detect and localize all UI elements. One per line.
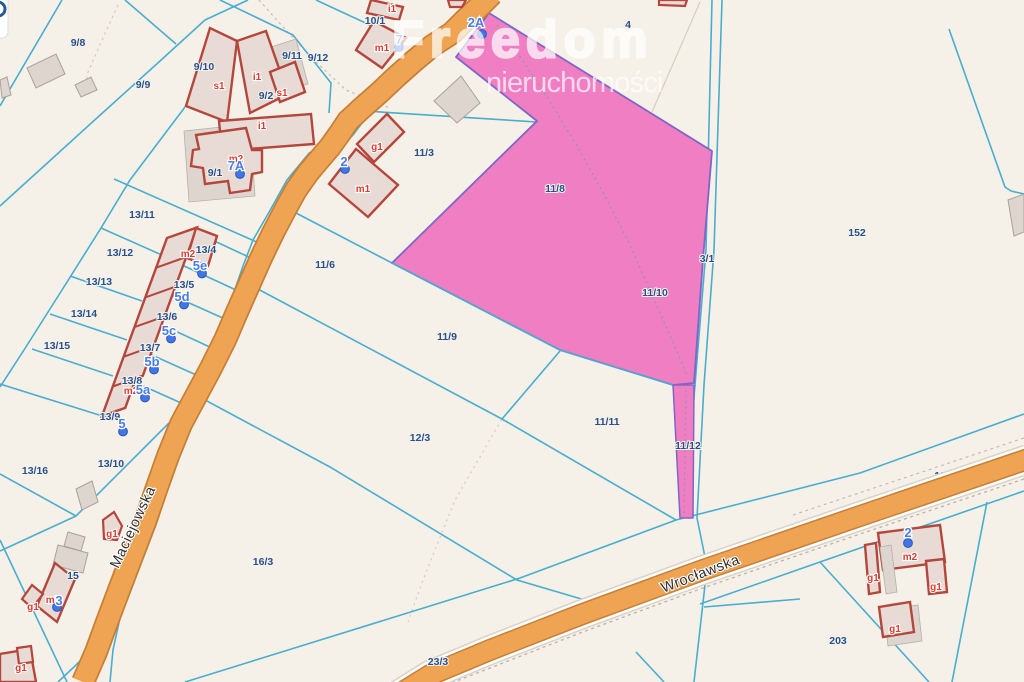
svg-text:11/10: 11/10 [642,287,668,299]
svg-text:11/12: 11/12 [675,440,701,452]
svg-text:5e: 5e [193,258,207,273]
svg-text:9/11: 9/11 [282,50,302,62]
svg-text:2: 2 [340,154,347,169]
svg-text:s1: s1 [213,81,225,92]
svg-text:5d: 5d [174,289,189,304]
svg-text:10/1: 10/1 [365,15,386,27]
svg-text:m2: m2 [903,552,918,563]
svg-text:g1: g1 [867,573,879,584]
svg-text:5c: 5c [162,323,176,338]
svg-text:9/9: 9/9 [136,79,151,91]
svg-text:13/13: 13/13 [86,276,112,288]
svg-text:152: 152 [848,227,866,239]
svg-text:nieruchomości: nieruchomości [486,67,663,99]
svg-text:13/10: 13/10 [98,458,124,470]
svg-text:13/14: 13/14 [71,308,97,320]
svg-text:15: 15 [67,570,79,582]
svg-text:g1: g1 [27,602,39,613]
svg-text:11/6: 11/6 [315,259,335,271]
svg-text:5: 5 [118,416,125,431]
svg-text:13/11: 13/11 [129,209,155,221]
svg-text:g1: g1 [106,529,118,540]
svg-text:11/8: 11/8 [545,183,565,195]
svg-text:m1: m1 [375,43,390,54]
svg-text:11/3: 11/3 [414,147,434,159]
svg-text:g1: g1 [889,624,901,635]
svg-text:13/16: 13/16 [22,465,48,477]
svg-text:9/8: 9/8 [71,37,86,49]
svg-text:2: 2 [904,525,911,540]
svg-text:5a: 5a [136,382,151,397]
svg-text:3: 3 [55,593,62,608]
svg-text:i1: i1 [258,121,267,132]
svg-text:9/2: 9/2 [259,90,274,102]
svg-text:g1: g1 [930,582,942,593]
svg-text:16/3: 16/3 [253,556,274,568]
svg-text:13/9: 13/9 [100,411,121,423]
svg-text:23/3: 23/3 [428,656,449,668]
svg-text:13/15: 13/15 [44,340,70,352]
svg-text:12/3: 12/3 [410,432,431,444]
svg-text:11/9: 11/9 [437,331,457,343]
svg-text:203: 203 [829,635,847,647]
svg-text:3/1: 3/1 [700,253,715,265]
svg-text:13/7: 13/7 [140,342,161,354]
svg-text:g1: g1 [371,142,383,153]
svg-text:9/12: 9/12 [308,52,329,64]
svg-text:s1: s1 [276,88,288,99]
svg-text:5b: 5b [144,354,159,369]
svg-text:13/12: 13/12 [107,247,133,259]
svg-text:7A: 7A [228,158,245,173]
svg-text:13/6: 13/6 [157,311,178,323]
svg-text:11/11: 11/11 [594,416,619,428]
svg-text:g1: g1 [15,663,27,674]
svg-text:i1: i1 [253,72,262,83]
svg-text:m1: m1 [356,184,371,195]
svg-text:Freedom: Freedom [392,11,654,69]
svg-text:9/1: 9/1 [208,167,223,179]
svg-text:13/4: 13/4 [196,244,217,256]
svg-text:9/10: 9/10 [194,61,215,73]
